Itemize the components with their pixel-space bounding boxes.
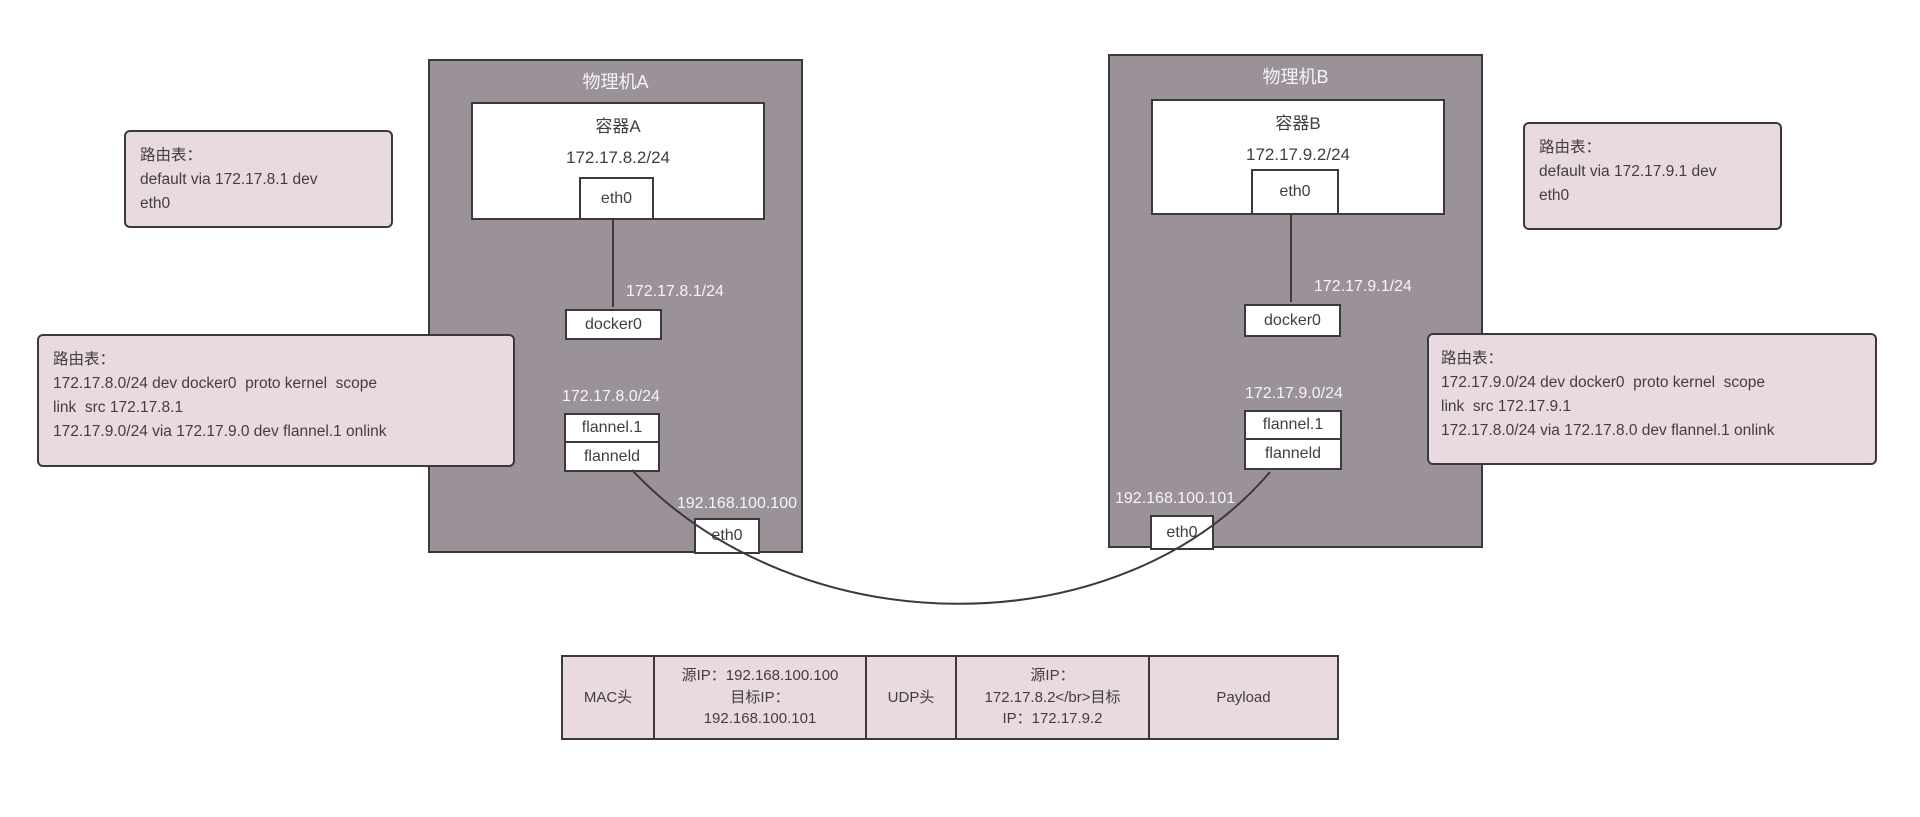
container-b-ip: 172.17.9.2/24 (1153, 145, 1443, 165)
container-b: 容器B 172.17.9.2/24 eth0 (1151, 99, 1445, 215)
flanneld-b: flanneld (1244, 438, 1342, 470)
physical-machine-a: 物理机A 容器A 172.17.8.2/24 eth0 172.17.8.1/2… (428, 59, 803, 553)
machine-a-title: 物理机A (430, 68, 801, 94)
packet-mac-header: MAC头 (563, 657, 653, 738)
packet-udp-header: UDP头 (865, 657, 955, 738)
container-a-title: 容器A (473, 112, 763, 137)
host-a-eth0: eth0 (694, 518, 760, 554)
flannel-subnet-b-label: 172.17.9.0/24 (1245, 385, 1343, 403)
container-b-title: 容器B (1153, 109, 1443, 134)
flannel-network-diagram: 物理机A 容器A 172.17.8.2/24 eth0 172.17.8.1/2… (0, 0, 1920, 817)
physical-machine-b: 物理机B 容器B 172.17.9.2/24 eth0 172.17.9.1/2… (1108, 54, 1483, 548)
container-a: 容器A 172.17.8.2/24 eth0 (471, 102, 765, 220)
machine-b-title: 物理机B (1110, 63, 1481, 89)
container-b-eth0: eth0 (1251, 169, 1339, 215)
container-a-ip: 172.17.8.2/24 (473, 148, 763, 168)
docker0-a: docker0 (565, 309, 662, 340)
container-a-eth0: eth0 (579, 177, 654, 220)
host-a-ip-label: 192.168.100.100 (677, 495, 797, 513)
docker0-a-ip-label: 172.17.8.1/24 (626, 283, 724, 301)
packet-inner-ip-header: 源IP：172.17.8.2</br>目标IP：172.17.9.2 (955, 657, 1148, 738)
route-table-container-a: 路由表：default via 172.17.8.1 deveth0 (124, 130, 393, 228)
host-b-eth0: eth0 (1150, 515, 1214, 550)
route-table-host-b: 路由表：172.17.9.0/24 dev docker0 proto kern… (1427, 333, 1877, 465)
route-table-host-a: 路由表：172.17.8.0/24 dev docker0 proto kern… (37, 334, 515, 467)
host-b-ip-label: 192.168.100.101 (1115, 490, 1235, 508)
flanneld-a: flanneld (564, 441, 660, 472)
packet-outer-ip-header: 源IP：192.168.100.100目标IP：192.168.100.101 (653, 657, 865, 738)
route-table-container-b: 路由表：default via 172.17.9.1 deveth0 (1523, 122, 1782, 230)
vxlan-packet-structure: MAC头 源IP：192.168.100.100目标IP：192.168.100… (561, 655, 1339, 740)
flannel1-a: flannel.1 (564, 413, 660, 443)
docker0-b-ip-label: 172.17.9.1/24 (1314, 278, 1412, 296)
flannel1-b: flannel.1 (1244, 410, 1342, 440)
docker0-b: docker0 (1244, 304, 1341, 337)
flannel-subnet-a-label: 172.17.8.0/24 (562, 388, 660, 406)
packet-payload: Payload (1148, 657, 1337, 738)
